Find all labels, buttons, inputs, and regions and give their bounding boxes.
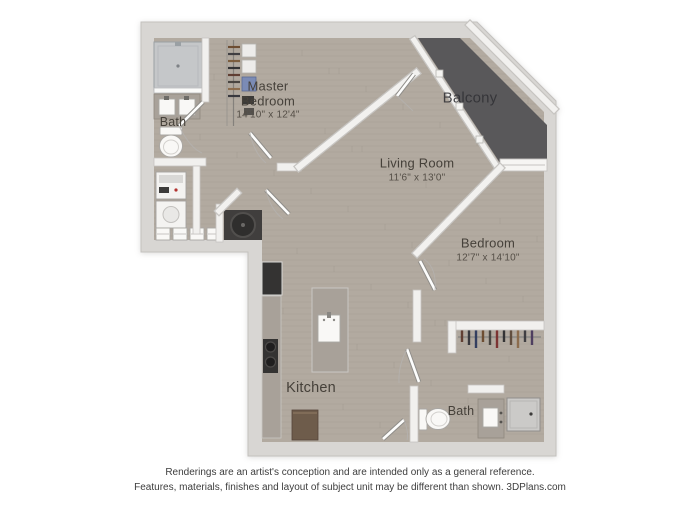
washer-dryer-unit (507, 398, 540, 431)
water-heater (224, 210, 262, 240)
refrigerator (262, 262, 282, 295)
disclaimer-line-2: Features, materials, finishes and layout… (0, 480, 700, 495)
room-label-living-room: Living Room 11'6" x 13'0" (380, 157, 454, 184)
shower (154, 42, 202, 93)
island-sink (318, 315, 340, 342)
storage-box (242, 60, 256, 73)
disclaimer-line-1: Renderings are an artist's conception an… (0, 465, 700, 480)
washer (156, 172, 186, 199)
cooktop (263, 339, 278, 373)
room-label-kitchen: Kitchen (286, 380, 336, 396)
room-label-bath-master: Bath (160, 115, 187, 129)
vanity-sink (478, 399, 504, 438)
kitchen-island (312, 288, 348, 372)
toilet (419, 409, 450, 431)
room-label-bath-second: Bath (448, 404, 475, 418)
storage-box (242, 44, 256, 57)
room-label-balcony: Balcony (443, 91, 498, 108)
window (500, 159, 547, 171)
room-label-master-bedroom: Master Bedroom 14'10" x 12'4" (226, 79, 310, 120)
dryer (156, 201, 186, 228)
floorplan-graphic (0, 0, 700, 525)
pantry-cabinet (292, 410, 318, 440)
floorplan-canvas: Master Bedroom 14'10" x 12'4" Living Roo… (0, 0, 700, 525)
room-label-bedroom: Bedroom 12'7" x 14'10" (456, 237, 519, 264)
disclaimer-text: Renderings are an artist's conception an… (0, 465, 700, 495)
toilet (160, 127, 183, 157)
